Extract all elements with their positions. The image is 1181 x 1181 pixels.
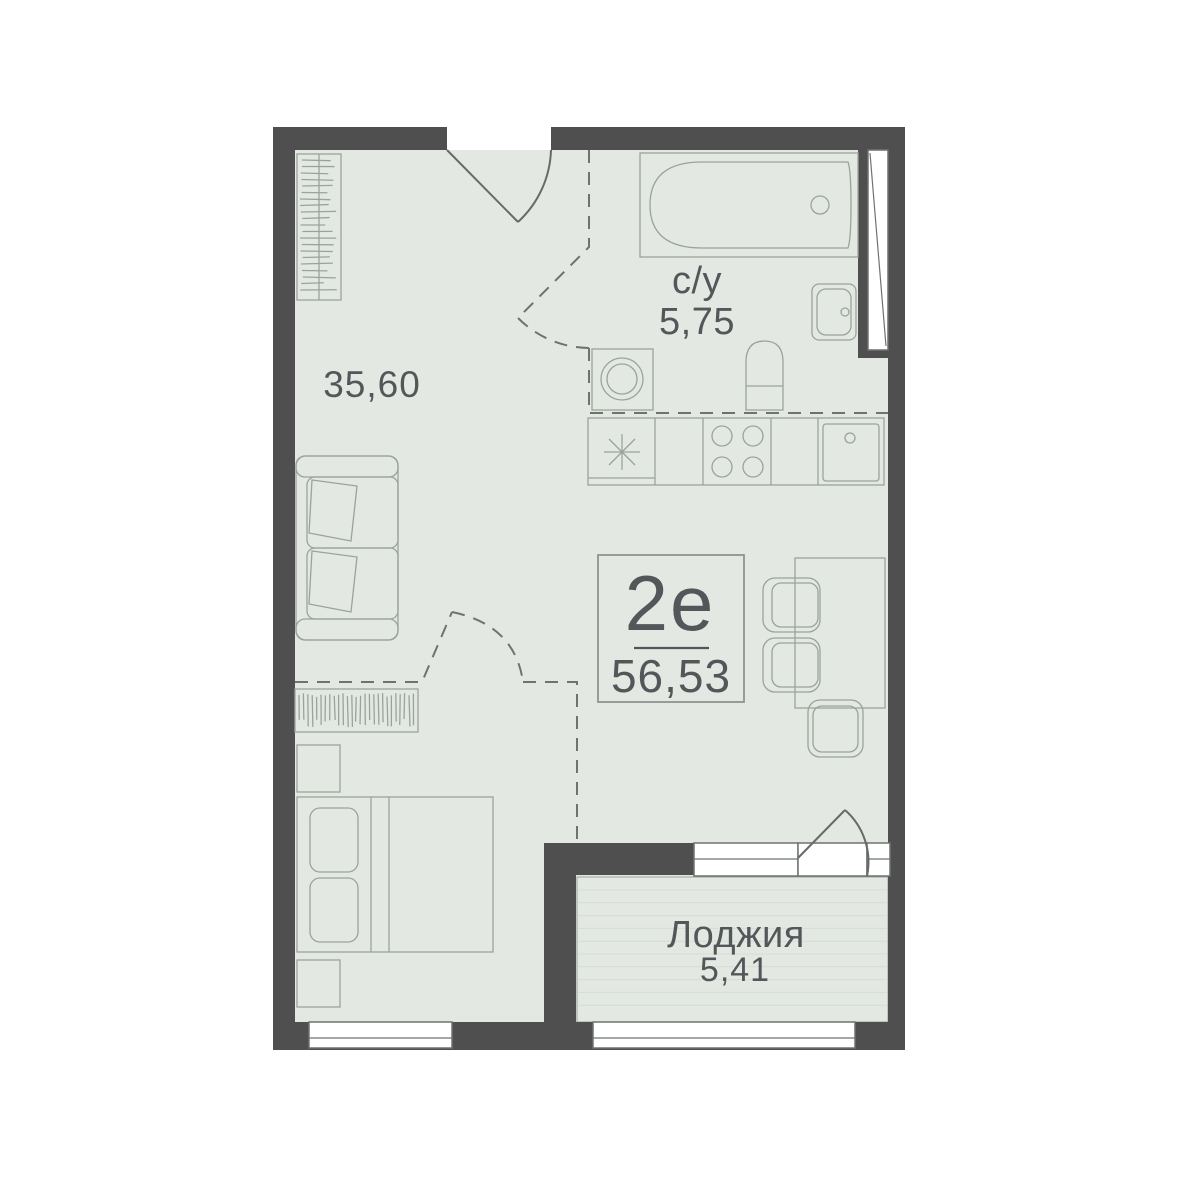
floor-plan: 2е 56,53 35,60 с/у 5,75 Лоджия 5,41 [0, 0, 1181, 1181]
loggia-area-label: 5,41 [700, 951, 770, 989]
unit-total-area: 56,53 [611, 650, 731, 702]
loggia-label: Лоджия [667, 914, 805, 956]
floor-plan-svg: 2е 56,53 35,60 с/у 5,75 Лоджия 5,41 [0, 0, 1181, 1181]
unit-type-label: 2е [625, 559, 716, 647]
living-area-label: 35,60 [323, 364, 421, 405]
loggia-bottom-window [593, 1022, 855, 1048]
bathroom-label: с/у [672, 260, 722, 302]
balcony-window-band [694, 843, 890, 876]
bathroom-window [868, 150, 888, 350]
bathroom-area-label: 5,75 [659, 301, 735, 343]
bedroom-window [309, 1022, 452, 1048]
